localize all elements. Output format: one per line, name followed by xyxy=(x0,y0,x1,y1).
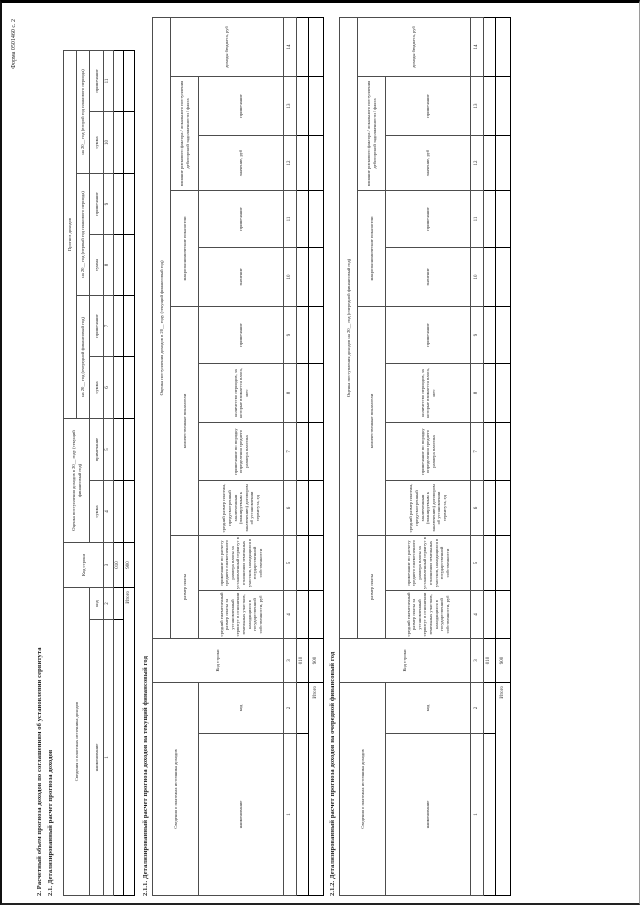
header-cell: Оценка поступления доходов на 20__ год (… xyxy=(340,17,358,638)
data-cell xyxy=(114,620,124,896)
column-number-cell: 13 xyxy=(471,77,484,136)
header-cell: на 20__ год (второй год планового период… xyxy=(77,50,90,173)
header-cell: средний ежемесячный размер платы за уста… xyxy=(199,591,284,639)
header-cell: количественные показатели xyxy=(171,307,199,536)
data-cell xyxy=(297,536,309,591)
header-cell: средний размер платежа, предусмотренный … xyxy=(386,481,471,536)
data-cell xyxy=(124,296,135,357)
data-cell xyxy=(309,248,324,307)
data-cell xyxy=(309,481,324,536)
header-cell: размер платы xyxy=(358,536,386,639)
data-cell xyxy=(484,591,496,639)
column-number-cell: 7 xyxy=(104,296,114,357)
header-cell: на 20__ год (очередной финансовый год) xyxy=(77,296,90,419)
data-cell xyxy=(297,481,309,536)
data-cell xyxy=(297,136,309,191)
header-cell: примечание xyxy=(90,419,104,481)
header-cell: Код строки xyxy=(64,543,104,588)
column-number-cell: 11 xyxy=(471,191,484,248)
data-cell: 010 xyxy=(297,639,309,683)
column-number-cell: 6 xyxy=(104,357,114,419)
column-number-cell: 11 xyxy=(284,191,297,248)
data-cell xyxy=(496,191,511,248)
header-cell: примечание по расчету среднего ежемесячн… xyxy=(386,536,471,591)
section-2-heading: 2. Расчетный объем прогноза доходов по с… xyxy=(36,13,43,896)
data-cell xyxy=(309,536,324,591)
header-cell: доходы бюджета, руб xyxy=(358,17,471,76)
data-cell xyxy=(124,50,135,111)
header-cell: количество периодов, за которые взимаетс… xyxy=(386,364,471,423)
data-cell xyxy=(496,248,511,307)
header-cell: Прогноз доходов xyxy=(64,50,77,418)
data-cell xyxy=(114,235,124,296)
data-cell xyxy=(309,191,324,248)
header-cell: наименование xyxy=(199,734,284,896)
section-2-1-heading: 2.1. Детализированный расчет прогноза до… xyxy=(47,13,54,896)
header-cell: примечание xyxy=(199,191,284,248)
header-cell: примечание по расчету среднего ежемесячн… xyxy=(199,536,284,591)
column-number-cell: 4 xyxy=(284,591,297,639)
data-cell xyxy=(124,174,135,235)
data-cell: 900 xyxy=(309,639,324,683)
header-cell: примечание xyxy=(386,307,471,364)
data-cell xyxy=(297,591,309,639)
data-cell xyxy=(484,683,496,734)
data-cell xyxy=(484,248,496,307)
header-cell: примечание xyxy=(199,307,284,364)
data-cell xyxy=(114,357,124,419)
header-cell: Код строки xyxy=(153,639,284,683)
column-number-cell: 2 xyxy=(284,683,297,734)
column-number-cell: 5 xyxy=(471,536,484,591)
data-cell xyxy=(309,136,324,191)
data-cell: Итого xyxy=(309,683,324,896)
data-cell xyxy=(124,357,135,419)
data-cell xyxy=(484,307,496,364)
data-cell: 010 xyxy=(114,543,124,588)
data-cell xyxy=(297,77,309,136)
data-cell xyxy=(496,77,511,136)
scanned-document: Форма 0501460 с. 2 2. Расчетный объем пр… xyxy=(0,0,640,905)
column-number-cell: 3 xyxy=(284,639,297,683)
header-cell: значение xyxy=(386,248,471,307)
column-number-cell: 8 xyxy=(284,364,297,423)
data-cell xyxy=(297,17,309,76)
data-cell xyxy=(484,481,496,536)
data-cell xyxy=(297,248,309,307)
header-cell: средний размер платежа, предусмотренный … xyxy=(199,481,284,536)
table-2-1-summary: Сведения о платежах источника доходовКод… xyxy=(63,50,135,896)
data-cell xyxy=(484,191,496,248)
data-cell xyxy=(309,423,324,481)
data-cell xyxy=(297,364,309,423)
column-number-cell: 8 xyxy=(471,364,484,423)
table-2-1-2-next-year: Сведения о платежах источника доходовКод… xyxy=(339,17,511,896)
data-cell xyxy=(484,17,496,76)
data-cell xyxy=(124,419,135,481)
data-cell xyxy=(484,734,496,896)
data-cell xyxy=(484,136,496,191)
header-cell: примечание xyxy=(90,296,104,357)
data-cell xyxy=(124,235,135,296)
data-cell xyxy=(297,191,309,248)
data-cell xyxy=(496,364,511,423)
header-cell: Сведения о платежах источника доходов xyxy=(340,683,386,896)
data-cell xyxy=(496,536,511,591)
header-cell: примечание xyxy=(199,77,284,136)
header-cell: значение, руб xyxy=(199,136,284,191)
column-number-cell: 1 xyxy=(471,734,484,896)
header-cell: сумма xyxy=(90,481,104,543)
header-cell: примечание по порядку определения средне… xyxy=(199,423,284,481)
data-cell: 900 xyxy=(496,639,511,683)
header-cell: сумма xyxy=(90,112,104,174)
data-cell xyxy=(114,174,124,235)
header-cell: макроэкономические показатели xyxy=(171,191,199,307)
column-number-cell: 5 xyxy=(284,536,297,591)
data-cell xyxy=(114,112,124,174)
column-number-cell: 12 xyxy=(471,136,484,191)
column-number-cell: 14 xyxy=(471,17,484,76)
section-2-1-1-heading: 2.1.1. Детализированный расчет прогноза … xyxy=(142,13,149,896)
data-cell xyxy=(114,588,124,620)
header-cell: доходы бюджета, руб xyxy=(171,17,284,76)
column-number-cell: 4 xyxy=(471,591,484,639)
column-number-cell: 13 xyxy=(284,77,297,136)
data-cell xyxy=(309,17,324,76)
form-page-landscape: Форма 0501460 с. 2 2. Расчетный объем пр… xyxy=(0,0,640,905)
header-cell: наименование xyxy=(386,734,471,896)
header-cell: примечание xyxy=(386,77,471,136)
header-cell: примечание xyxy=(90,174,104,235)
header-cell: код xyxy=(90,588,104,620)
header-cell: Сведения о платежах источника доходов xyxy=(153,683,199,896)
table-2-1-1-current-year: Сведения о платежах источника доходовКод… xyxy=(152,17,324,896)
header-cell: значение, руб xyxy=(386,136,471,191)
column-number-cell: 10 xyxy=(104,112,114,174)
data-cell xyxy=(124,481,135,543)
column-number-cell: 11 xyxy=(104,50,114,111)
header-cell: примечание xyxy=(90,50,104,111)
column-number-cell: 14 xyxy=(284,17,297,76)
column-number-cell: 5 xyxy=(104,419,114,481)
column-number-cell: 10 xyxy=(284,248,297,307)
data-cell xyxy=(114,481,124,543)
data-cell xyxy=(484,364,496,423)
column-number-cell: 4 xyxy=(104,481,114,543)
header-cell: код xyxy=(386,683,471,734)
column-number-cell: 7 xyxy=(471,423,484,481)
column-number-cell: 6 xyxy=(471,481,484,536)
column-number-cell: 9 xyxy=(104,174,114,235)
header-cell: примечание xyxy=(386,191,471,248)
header-cell: Оценка поступления доходов в 20__ году (… xyxy=(153,17,171,638)
data-cell xyxy=(114,50,124,111)
column-number-cell: 1 xyxy=(284,734,297,896)
header-cell: сумма xyxy=(90,357,104,419)
data-cell xyxy=(297,423,309,481)
header-cell: размер платы xyxy=(171,536,199,639)
header-cell: на 20__ год (первый год планового период… xyxy=(77,174,90,296)
data-cell xyxy=(496,423,511,481)
header-cell: макроэкономические показатели xyxy=(358,191,386,307)
header-cell: наименование xyxy=(90,620,104,896)
header-cell: Сведения о платежах источника доходов xyxy=(64,588,90,896)
header-cell: примечание по порядку определения средне… xyxy=(386,423,471,481)
data-cell xyxy=(297,307,309,364)
header-cell: код xyxy=(199,683,284,734)
data-cell xyxy=(309,364,324,423)
column-number-cell: 9 xyxy=(471,307,484,364)
column-number-cell: 12 xyxy=(284,136,297,191)
data-cell xyxy=(114,296,124,357)
data-cell xyxy=(309,307,324,364)
column-number-cell: 2 xyxy=(104,588,114,620)
header-cell: влияние рискового фактора / локального п… xyxy=(358,77,386,191)
column-number-cell: 1 xyxy=(104,620,114,896)
data-cell xyxy=(496,307,511,364)
header-cell: сумма xyxy=(90,235,104,296)
data-cell xyxy=(496,136,511,191)
data-cell xyxy=(124,112,135,174)
data-cell xyxy=(484,536,496,591)
data-cell xyxy=(114,419,124,481)
data-cell xyxy=(484,423,496,481)
header-cell: Код строки xyxy=(340,639,471,683)
header-cell: средний ежемесячный размер платы за уста… xyxy=(386,591,471,639)
header-cell: значение xyxy=(199,248,284,307)
header-cell: влияние рискового фактора / локального п… xyxy=(171,77,199,191)
column-number-cell: 3 xyxy=(104,543,114,588)
column-number-cell: 6 xyxy=(284,481,297,536)
column-number-cell: 3 xyxy=(471,639,484,683)
column-number-cell: 7 xyxy=(284,423,297,481)
data-cell xyxy=(484,77,496,136)
data-cell xyxy=(496,591,511,639)
column-number-cell: 9 xyxy=(284,307,297,364)
data-cell: Итого xyxy=(496,683,511,896)
data-cell xyxy=(496,481,511,536)
header-cell: Оценка поступления доходов в 20__ году (… xyxy=(64,419,90,543)
header-cell: количественные показатели xyxy=(358,307,386,536)
section-2-1-2-heading: 2.1.2. Детализированный расчет прогноза … xyxy=(329,13,336,896)
column-number-cell: 2 xyxy=(471,683,484,734)
data-cell xyxy=(297,734,309,896)
data-cell xyxy=(309,591,324,639)
column-number-cell: 10 xyxy=(471,248,484,307)
header-cell: количество периодов, за которые взимаетс… xyxy=(199,364,284,423)
data-cell: 010 xyxy=(484,639,496,683)
data-cell xyxy=(309,77,324,136)
column-number-cell: 8 xyxy=(104,235,114,296)
data-cell: 900 xyxy=(124,543,135,588)
data-cell: Итого xyxy=(124,588,135,896)
data-cell xyxy=(496,17,511,76)
data-cell xyxy=(297,683,309,734)
form-number-label: Форма 0501460 с. 2 xyxy=(11,13,20,896)
